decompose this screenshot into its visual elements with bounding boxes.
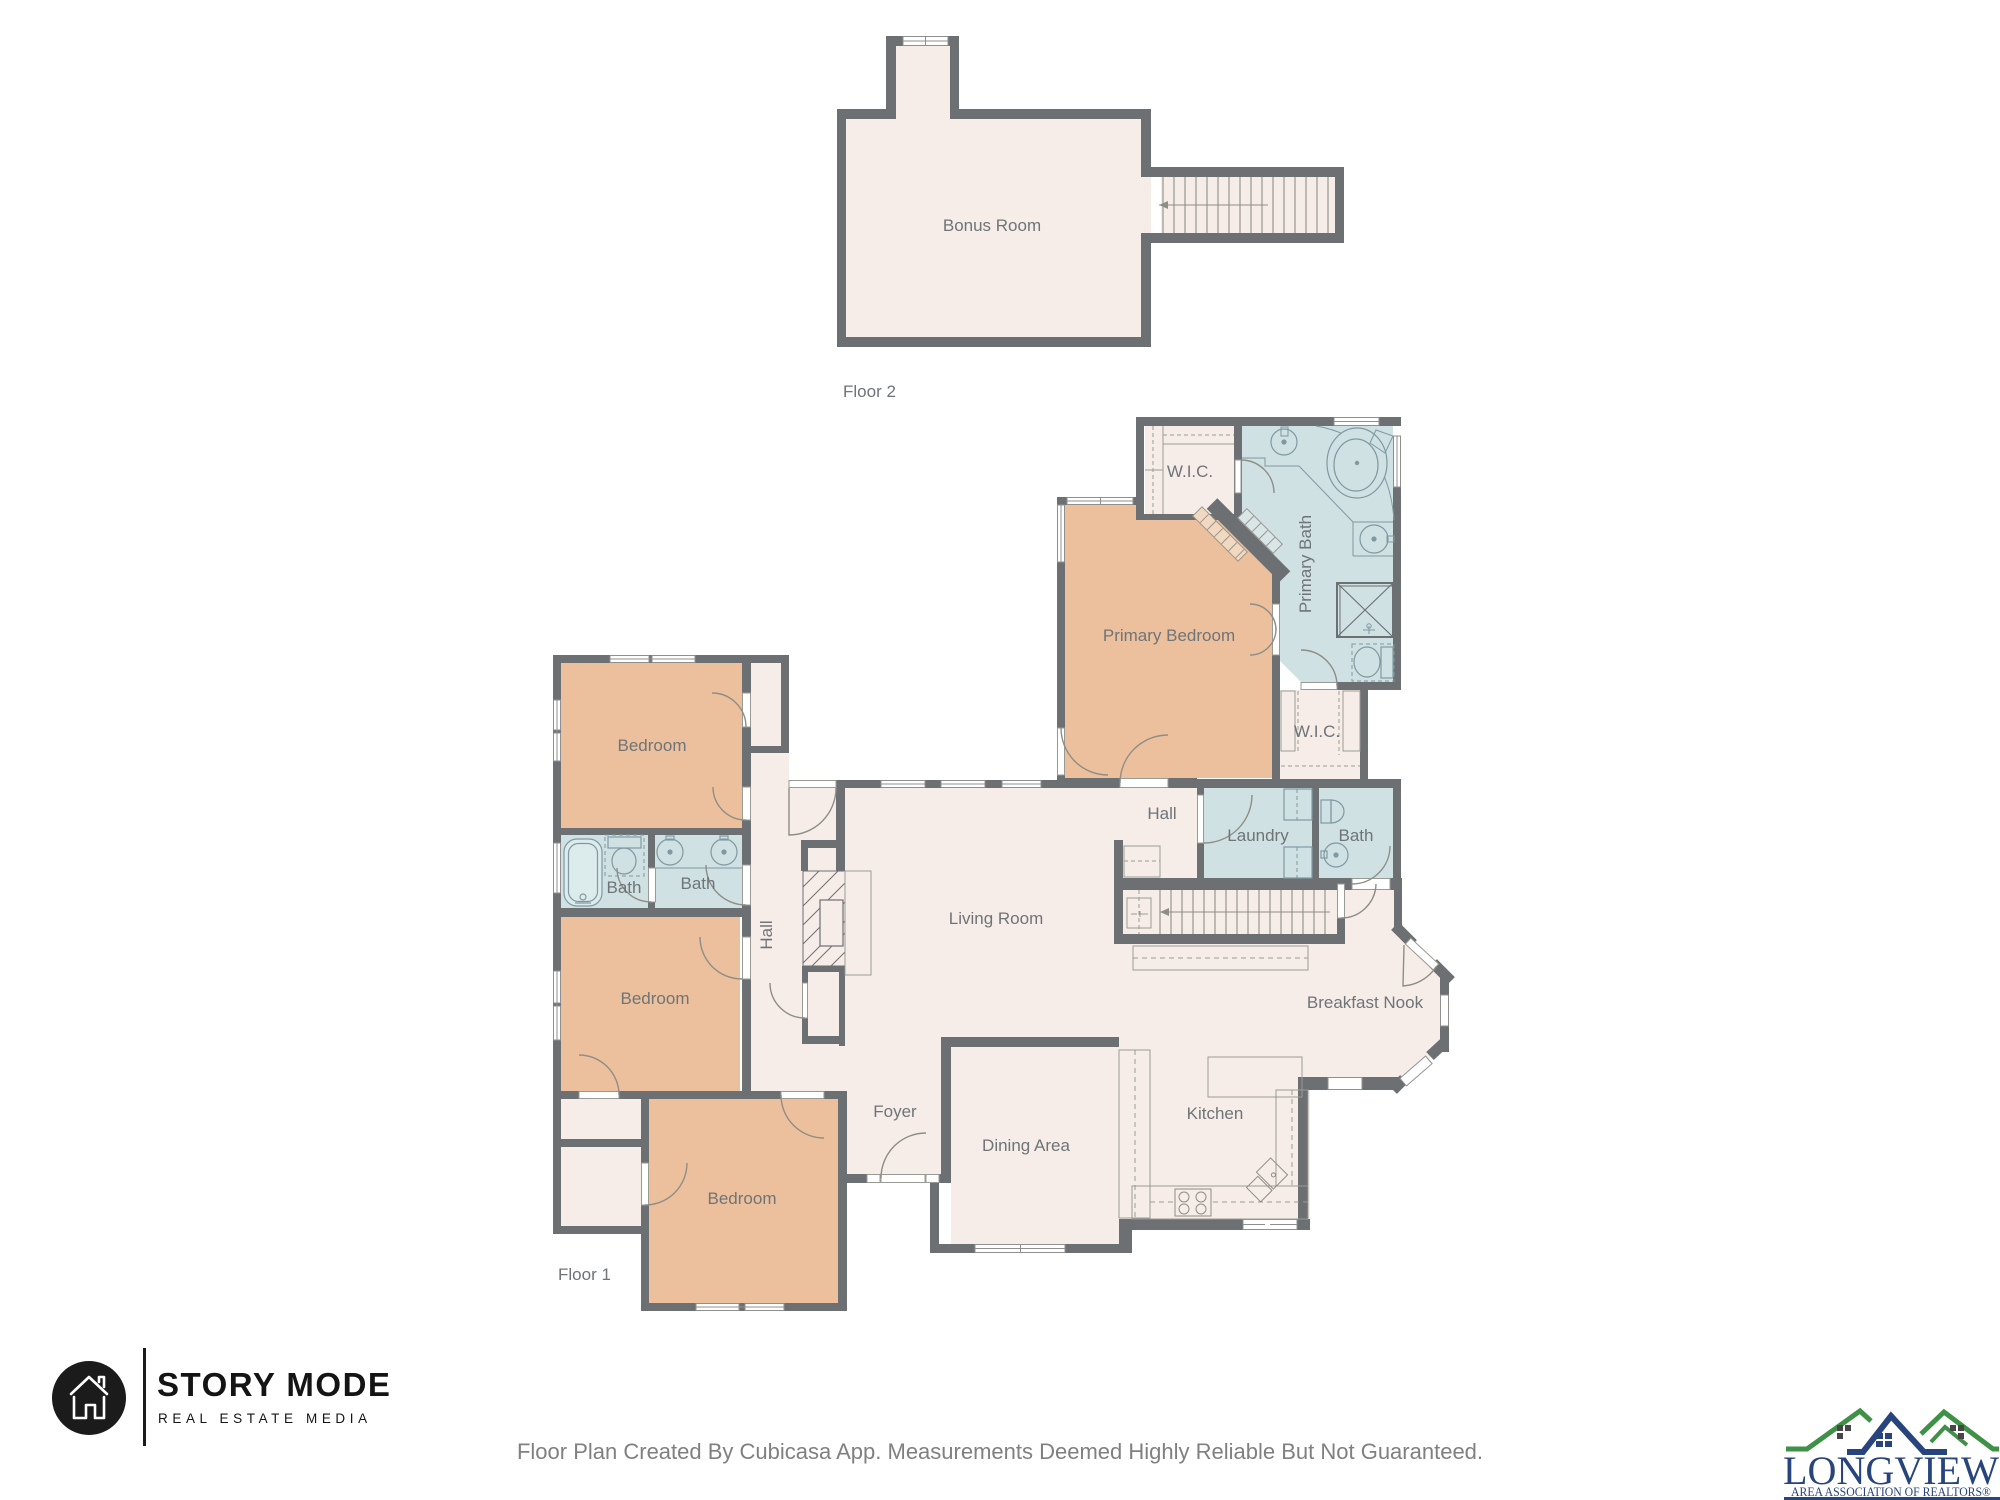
svg-text:Bedroom: Bedroom [621,989,690,1008]
svg-text:Bath: Bath [1339,826,1374,845]
svg-text:Floor 2: Floor 2 [843,382,896,401]
svg-text:Kitchen: Kitchen [1187,1104,1244,1123]
svg-text:Bath: Bath [681,874,716,893]
svg-text:Primary Bedroom: Primary Bedroom [1103,626,1235,645]
svg-text:STORY MODE: STORY MODE [157,1366,391,1403]
svg-text:REAL ESTATE MEDIA: REAL ESTATE MEDIA [158,1411,372,1426]
svg-text:Laundry: Laundry [1227,826,1289,845]
svg-text:Dining Area: Dining Area [982,1136,1070,1155]
svg-text:Hall: Hall [757,920,776,949]
svg-text:Primary Bath: Primary Bath [1296,515,1315,613]
svg-text:Living Room: Living Room [949,909,1044,928]
svg-text:Bedroom: Bedroom [708,1189,777,1208]
svg-text:W.I.C.: W.I.C. [1167,462,1213,481]
svg-text:Bath: Bath [607,878,642,897]
svg-text:Bedroom: Bedroom [618,736,687,755]
svg-text:Foyer: Foyer [873,1102,917,1121]
svg-text:Floor 1: Floor 1 [558,1265,611,1284]
svg-text:Hall: Hall [1147,804,1176,823]
svg-text:Floor Plan Created By Cubicasa: Floor Plan Created By Cubicasa App. Meas… [517,1439,1483,1464]
svg-text:AREA ASSOCIATION OF REALTORS®: AREA ASSOCIATION OF REALTORS® [1791,1485,1991,1499]
svg-text:Breakfast Nook: Breakfast Nook [1307,993,1424,1012]
svg-text:W.I.C.: W.I.C. [1294,722,1340,741]
svg-text:Bonus Room: Bonus Room [943,216,1041,235]
